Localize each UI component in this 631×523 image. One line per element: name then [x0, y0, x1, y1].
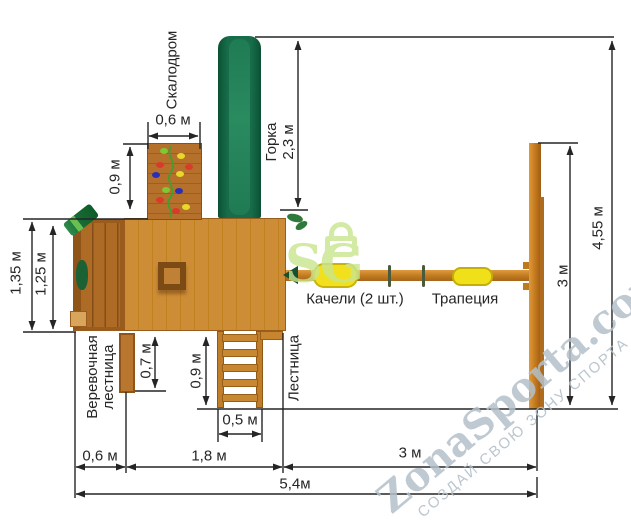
platform-hatch-opening — [164, 268, 180, 284]
slide — [218, 36, 261, 218]
label-trapeze: Трапеция — [432, 291, 499, 308]
climbing-hold — [177, 153, 185, 159]
climbing-hold — [160, 148, 168, 154]
label-climbing-wall: Скалодром — [164, 31, 181, 110]
ladder-rung — [222, 379, 258, 387]
dim-bottom-box: 0,6 м — [82, 448, 117, 465]
dim-rope-length: 0,7 м — [138, 343, 155, 378]
label-rope-ladder: Веревочная лестница — [85, 335, 117, 418]
dim-bottom-platform: 1,8 м — [191, 448, 226, 465]
ladder-rung — [222, 349, 258, 357]
swing-hanger — [422, 265, 425, 287]
label-slide-name: Горка — [263, 122, 280, 161]
platform-step — [260, 331, 283, 340]
ladder-rung — [222, 364, 258, 372]
rope-ladder-rail — [119, 333, 135, 393]
label-rope-ladder-2: лестница — [101, 335, 117, 418]
access-ladder — [217, 331, 263, 408]
dim-total-width: 5,4м — [279, 476, 310, 493]
steering-handle — [76, 260, 88, 290]
dim-swing-height: 3 м — [555, 265, 572, 288]
climbing-hold — [175, 188, 183, 194]
label-slide: Горка 2,3 м — [263, 122, 297, 161]
climbing-hold — [182, 204, 190, 210]
dim-ladder-length: 0,9 м — [188, 353, 205, 388]
dim-ladder-width: 0,5 м — [222, 412, 257, 429]
dim-total-height: 4,55 м — [590, 206, 607, 250]
dim-slide-length: 2,3 м — [280, 122, 297, 161]
climbing-wall — [147, 143, 202, 220]
sandbox-seat — [70, 311, 87, 327]
climbing-hold — [152, 172, 160, 178]
trapeze-bar — [452, 267, 493, 286]
climbing-hold — [156, 197, 164, 203]
label-rope-ladder-1: Веревочная — [85, 335, 101, 418]
dim-box-inner: 1,25 м — [33, 252, 50, 296]
main-platform — [124, 218, 286, 331]
dim-wall-height: 0,9 м — [107, 159, 124, 194]
logo-monogram: SG — [285, 234, 361, 295]
telescope-band — [69, 216, 84, 232]
ladder-rung — [222, 334, 258, 342]
label-ladder: Лестница — [286, 335, 303, 401]
slide-chute — [229, 39, 250, 215]
climbing-hold — [156, 162, 164, 168]
climbing-hold — [185, 164, 193, 170]
watermark-site: ZonaSporta.com — [368, 250, 631, 522]
climbing-hold — [176, 171, 184, 177]
dim-wall-width: 0,6 м — [155, 112, 190, 129]
site-logo-watermark: SG — [283, 222, 368, 307]
beam-joint — [523, 262, 529, 269]
playground-dimension-diagram: Скалодром 0,6 м 0,9 м Горка 2,3 м 1,35 м… — [0, 0, 631, 523]
dim-box-outer: 1,35 м — [8, 251, 25, 295]
swing-hanger — [388, 265, 391, 287]
beam-joint — [523, 283, 529, 290]
climbing-hold — [172, 208, 180, 214]
ladder-rung — [222, 394, 258, 402]
climbing-hold — [162, 187, 170, 193]
